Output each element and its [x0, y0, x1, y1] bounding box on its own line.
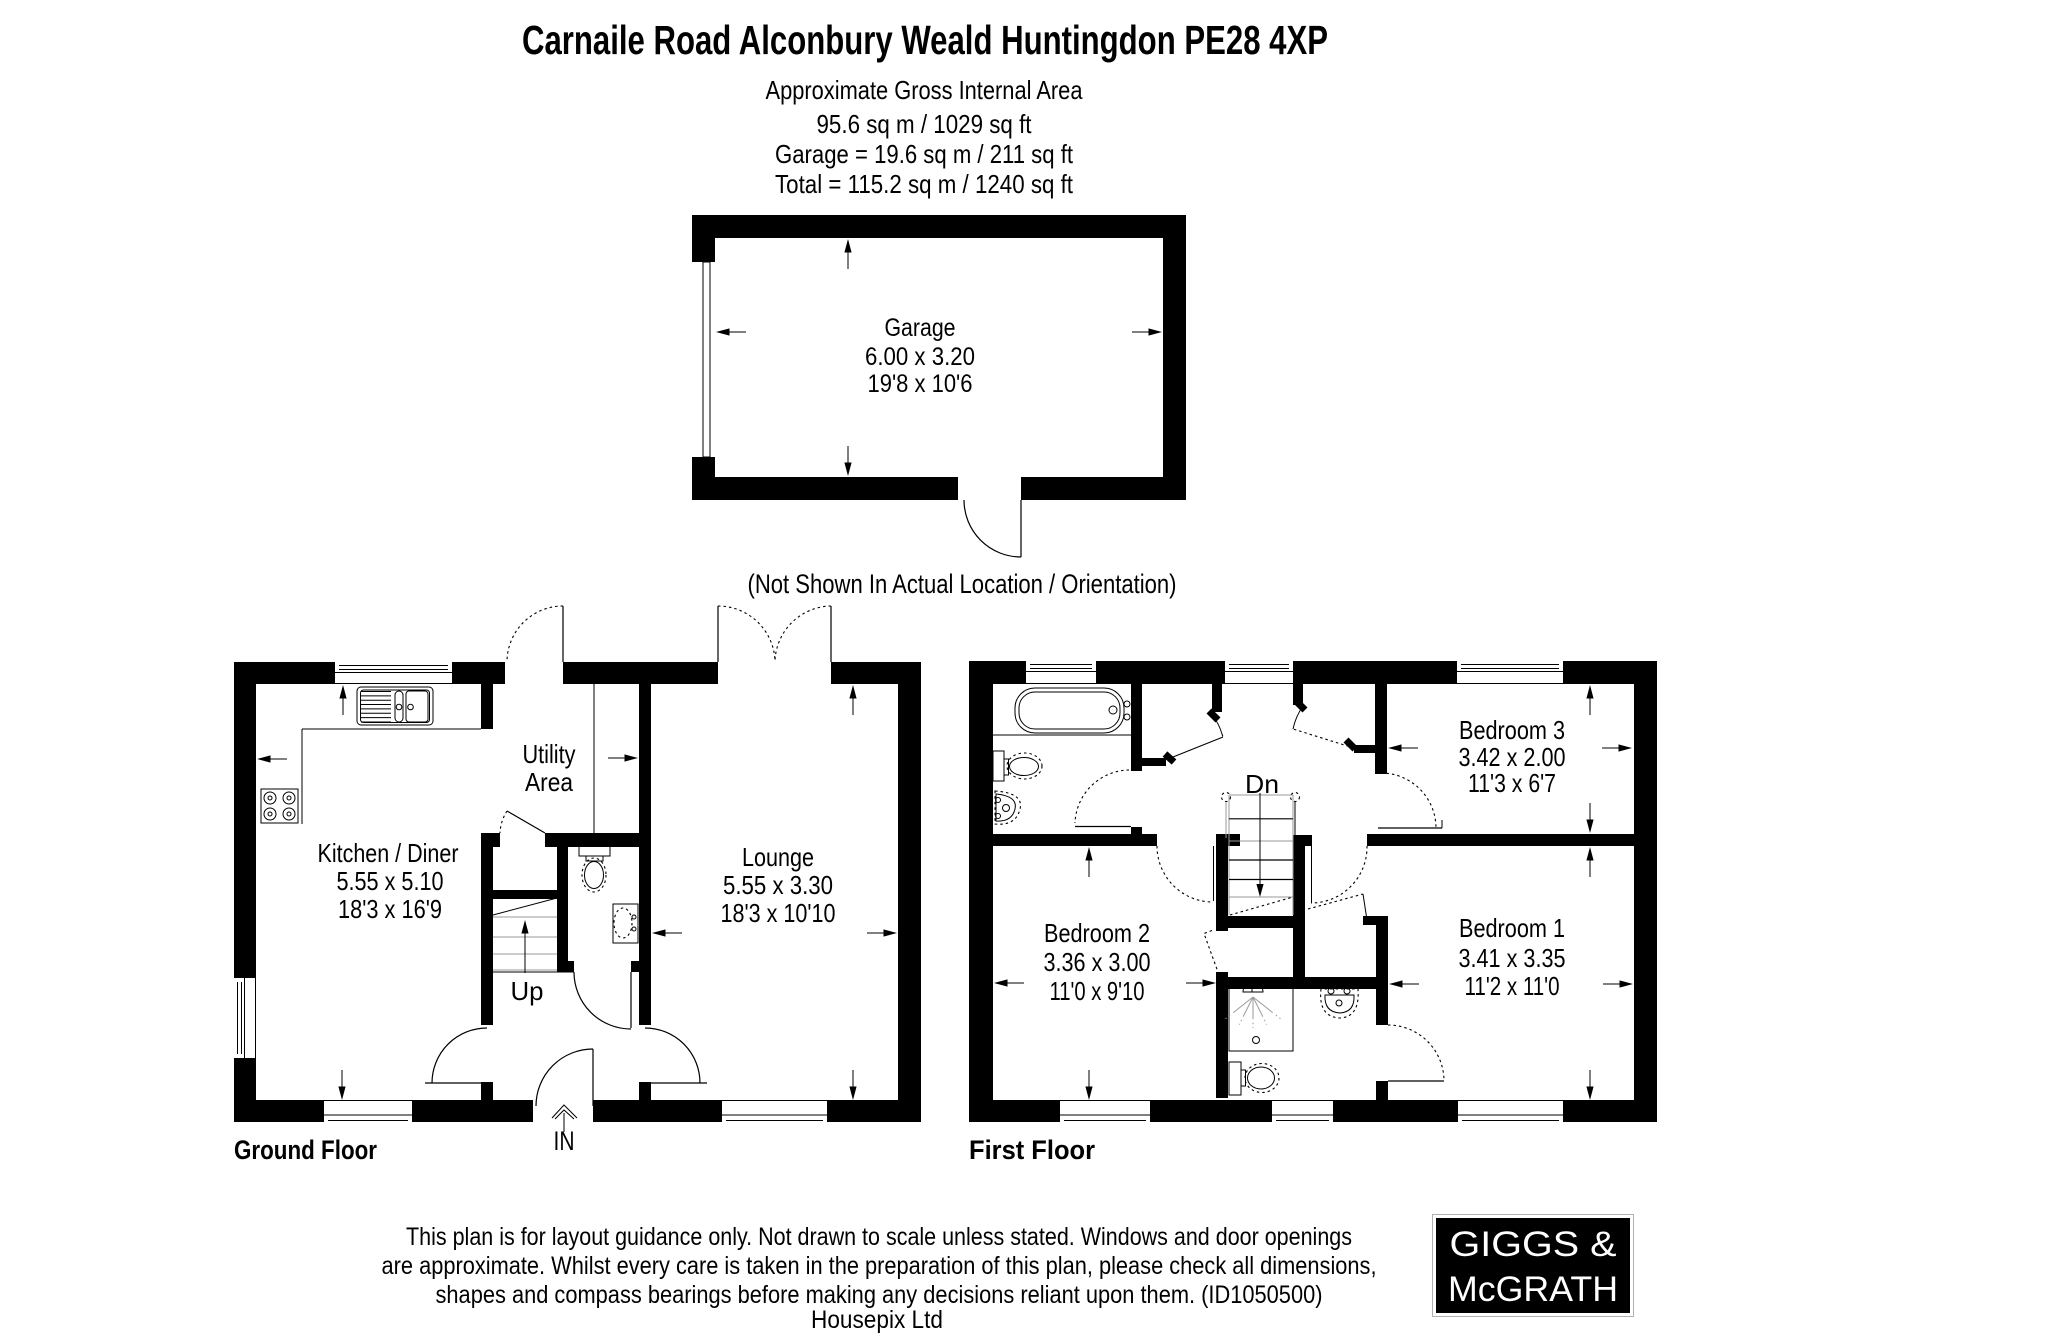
- svg-text:11'2 x 11'0: 11'2 x 11'0: [1465, 971, 1560, 1001]
- svg-text:Kitchen / Diner: Kitchen / Diner: [318, 838, 459, 868]
- svg-text:Housepix Ltd: Housepix Ltd: [811, 1306, 943, 1334]
- svg-text:Total = 115.2 sq m / 1240 sq f: Total = 115.2 sq m / 1240 sq ft: [775, 169, 1074, 199]
- svg-text:Ground Floor: Ground Floor: [234, 1135, 377, 1165]
- svg-text:11'0 x 9'10: 11'0 x 9'10: [1050, 976, 1145, 1006]
- svg-text:5.55 x 3.30: 5.55 x 3.30: [723, 870, 833, 900]
- svg-text:Garage = 19.6 sq m / 211 sq ft: Garage = 19.6 sq m / 211 sq ft: [775, 139, 1074, 169]
- svg-text:Carnaile Road Alconbury Weald: Carnaile Road Alconbury Weald Huntingdon…: [522, 17, 1328, 63]
- svg-text:This plan is for layout guidan: This plan is for layout guidance only. N…: [406, 1223, 1352, 1251]
- svg-text:6.00 x 3.20: 6.00 x 3.20: [865, 343, 975, 371]
- svg-text:3.41 x 3.35: 3.41 x 3.35: [1459, 943, 1566, 973]
- svg-text:Bedroom 2: Bedroom 2: [1044, 918, 1150, 948]
- svg-text:Approximate Gross Internal Are: Approximate Gross Internal Area: [766, 75, 1083, 105]
- svg-text:3.36 x 3.00: 3.36 x 3.00: [1044, 947, 1151, 977]
- svg-text:18'3 x 16'9: 18'3 x 16'9: [338, 894, 442, 924]
- svg-text:Lounge: Lounge: [742, 842, 814, 872]
- svg-text:First Floor: First Floor: [969, 1135, 1095, 1165]
- svg-text:19'8 x 10'6: 19'8 x 10'6: [868, 370, 973, 398]
- svg-text:are approximate. Whilst every: are approximate. Whilst every care is ta…: [382, 1252, 1377, 1280]
- svg-text:Up: Up: [511, 976, 544, 1006]
- svg-text:shapes and compass bearings be: shapes and compass bearings before makin…: [436, 1281, 1323, 1309]
- svg-text:5.55 x 5.10: 5.55 x 5.10: [337, 866, 444, 896]
- svg-text:Dn: Dn: [1245, 769, 1279, 799]
- svg-text:Utility: Utility: [523, 739, 576, 769]
- svg-text:95.6 sq m / 1029 sq ft: 95.6 sq m / 1029 sq ft: [817, 109, 1033, 139]
- svg-text:Garage: Garage: [885, 314, 956, 342]
- svg-text:McGRATH: McGRATH: [1448, 1270, 1618, 1309]
- svg-text:18'3 x 10'10: 18'3 x 10'10: [721, 898, 836, 928]
- svg-text:11'3 x 6'7: 11'3 x 6'7: [1468, 768, 1556, 798]
- svg-text:(Not Shown In Actual Location: (Not Shown In Actual Location / Orientat…: [748, 569, 1177, 599]
- svg-text:Area: Area: [525, 767, 573, 797]
- svg-text:Bedroom 3: Bedroom 3: [1459, 715, 1565, 745]
- svg-text:GIGGS &: GIGGS &: [1450, 1225, 1617, 1264]
- svg-text:Bedroom 1: Bedroom 1: [1459, 913, 1565, 943]
- svg-text:IN: IN: [554, 1126, 575, 1156]
